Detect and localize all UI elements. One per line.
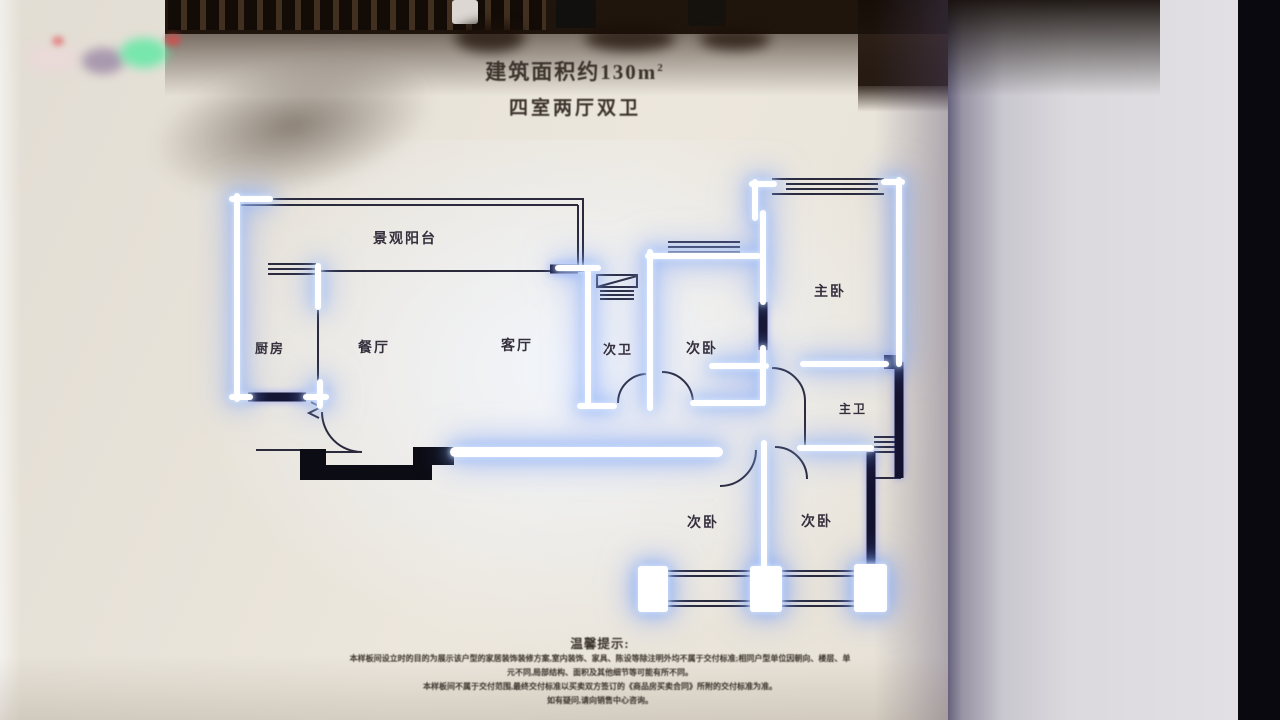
entry-black-walls <box>300 447 454 480</box>
disclaimer-line: 如有疑问,请向销售中心咨询。 <box>270 694 930 708</box>
room-label-kitchen: 厨房 <box>255 341 285 356</box>
room-labels: 景观阳台 厨房 餐厅 客厅 次卫 次卧 主卧 主卫 次卧 次卧 <box>255 230 867 531</box>
disclaimer-line: 元不同,局部结构、面积及其他细节等可能有所不同。 <box>270 666 930 680</box>
lit-walls <box>232 180 902 612</box>
room-label-dining: 餐厅 <box>357 339 390 356</box>
panel-top-shadow <box>948 0 1160 96</box>
unlit-walls <box>248 269 900 599</box>
disclaimer-line: 本样板间不属于交付范围,最终交付标准以买卖双方签订的《商品房买卖合同》所附的交付… <box>270 680 930 694</box>
photo-of-floorplan-lightbox: 建筑面积约130m2 四室两厅双卫 <box>0 0 1280 720</box>
room-label-living: 客厅 <box>500 337 533 354</box>
disclaimer-line: 本样板间设立时的目的为展示该户型的家居装饰装修方案,室内装饰、家具、陈设等除注明… <box>270 652 930 666</box>
room-label-master-bedroom: 主卧 <box>814 283 846 300</box>
room-label-master-bath: 主卫 <box>839 401 867 416</box>
room-label-second-bath: 次卫 <box>603 342 633 357</box>
room-label-second-bedroom-bottom-right: 次卧 <box>801 513 833 530</box>
right-dark-edge <box>1238 0 1280 720</box>
room-label-second-bedroom-top: 次卧 <box>686 340 718 357</box>
room-label-balcony: 景观阳台 <box>373 230 437 247</box>
disclaimer-title: 温馨提示: <box>270 633 930 652</box>
wall-panel-right <box>948 0 1238 720</box>
thin-wall-and-window-lines <box>237 179 901 606</box>
disclaimer-block: 温馨提示: 本样板间设立时的目的为展示该户型的家居装饰装修方案,室内装饰、家具、… <box>270 633 930 708</box>
room-label-second-bedroom-bottom-left: 次卧 <box>687 514 719 531</box>
